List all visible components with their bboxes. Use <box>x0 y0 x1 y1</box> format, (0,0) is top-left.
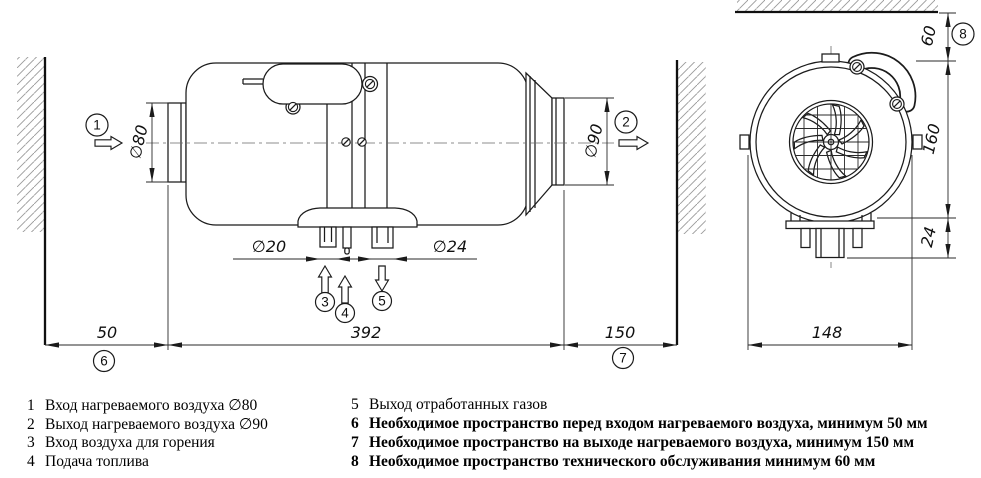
legend-text-5: Выход отработанных газов <box>369 396 547 413</box>
dim-label-60: 60 <box>917 24 940 48</box>
legend-text-8: Необходимое пространство технического об… <box>369 453 875 470</box>
legend-item-1: 1Вход нагреваемого воздуха ∅80 <box>27 396 257 415</box>
legend-num-1: 1 <box>27 397 45 415</box>
front-view: 60 160 24 8 148 <box>735 0 974 350</box>
callout-8-num: 8 <box>959 27 967 42</box>
dim-label-50: 50 <box>97 323 117 342</box>
dim-label-d24: ∅24 <box>433 237 467 256</box>
legend-num-5: 5 <box>351 396 369 414</box>
ceiling-hatch <box>737 0 938 12</box>
callout-3-num: 3 <box>321 295 329 310</box>
legend-item-7: 7Необходимое пространство на выходе нагр… <box>351 434 914 452</box>
dim-label-148: 148 <box>812 323 843 342</box>
dim-label-24: 24 <box>917 225 940 249</box>
legend-text-3: Вход воздуха для горения <box>45 434 215 451</box>
installation-drawing-page: ∅80 ∅90 ∅20 ∅24 1 2 <box>0 0 981 478</box>
callout-2-num: 2 <box>622 115 630 130</box>
exhaust-pipe <box>372 227 393 248</box>
top-tab <box>822 54 839 62</box>
legend-num-6: 6 <box>351 415 369 433</box>
technical-drawing: ∅80 ∅90 ∅20 ∅24 1 2 <box>0 0 981 380</box>
dim-label-d20: ∅20 <box>252 237 286 256</box>
legend-num-3: 3 <box>27 434 45 452</box>
dim-label-d90: ∅90 <box>580 122 606 160</box>
legend-text-2: Выход нагреваемого воздуха ∅90 <box>45 416 268 433</box>
dim-d80: ∅80 <box>125 103 169 182</box>
callout-7-num: 7 <box>619 351 627 366</box>
dim-d90: ∅90 <box>565 98 614 185</box>
legend-item-8: 8Необходимое пространство технического о… <box>351 453 875 471</box>
combustion-air-pipe <box>320 227 336 247</box>
legend-num-7: 7 <box>351 434 369 452</box>
flow-arrow-air-in <box>95 137 122 150</box>
side-view: ∅80 ∅90 ∅20 ∅24 1 2 <box>17 57 706 372</box>
outlet-stub <box>552 98 564 185</box>
legend-text-1: Вход нагреваемого воздуха ∅80 <box>45 397 257 414</box>
left-side-tab <box>740 135 749 149</box>
flow-arrow-exhaust-out <box>376 266 389 291</box>
legend-item-3: 3Вход воздуха для горения <box>27 434 215 452</box>
callout-5-num: 5 <box>378 294 386 309</box>
legend-item-5: 5Выход отработанных газов <box>351 396 547 414</box>
legend-num-4: 4 <box>27 453 45 471</box>
legend-num-2: 2 <box>27 416 45 434</box>
mounting-flange <box>298 208 417 227</box>
legend-text-7: Необходимое пространство на выходе нагре… <box>369 434 914 451</box>
legend-item-4: 4Подача топлива <box>27 453 149 471</box>
flow-arrow-air-out <box>619 137 648 150</box>
legend-item-2: 2Выход нагреваемого воздуха ∅90 <box>27 415 268 434</box>
dim-label-150: 150 <box>605 323 636 342</box>
callout-4-num: 4 <box>341 306 349 321</box>
legend-text-4: Подача топлива <box>45 453 149 470</box>
callout-1-num: 1 <box>93 118 101 133</box>
legend-text-6: Необходимое пространство перед входом на… <box>369 415 928 432</box>
dim-label-392: 392 <box>351 323 382 342</box>
dim-pipes: ∅20 ∅24 <box>233 237 477 262</box>
flow-arrow-combustion-in <box>319 266 332 293</box>
right-wall-hatch <box>677 62 706 234</box>
inlet-stub <box>168 103 186 182</box>
fuel-pipe <box>343 227 351 248</box>
dim-label-d80: ∅80 <box>125 123 151 161</box>
flow-arrow-fuel-in <box>339 276 352 303</box>
dim-label-160: 160 <box>919 122 944 156</box>
control-box <box>263 64 362 104</box>
heater-side-body <box>168 63 564 254</box>
legend-num-8: 8 <box>351 453 369 471</box>
legend-item-6: 6Необходимое пространство перед входом н… <box>351 415 928 433</box>
left-wall-hatch <box>17 57 45 232</box>
callout-6-num: 6 <box>100 354 108 369</box>
